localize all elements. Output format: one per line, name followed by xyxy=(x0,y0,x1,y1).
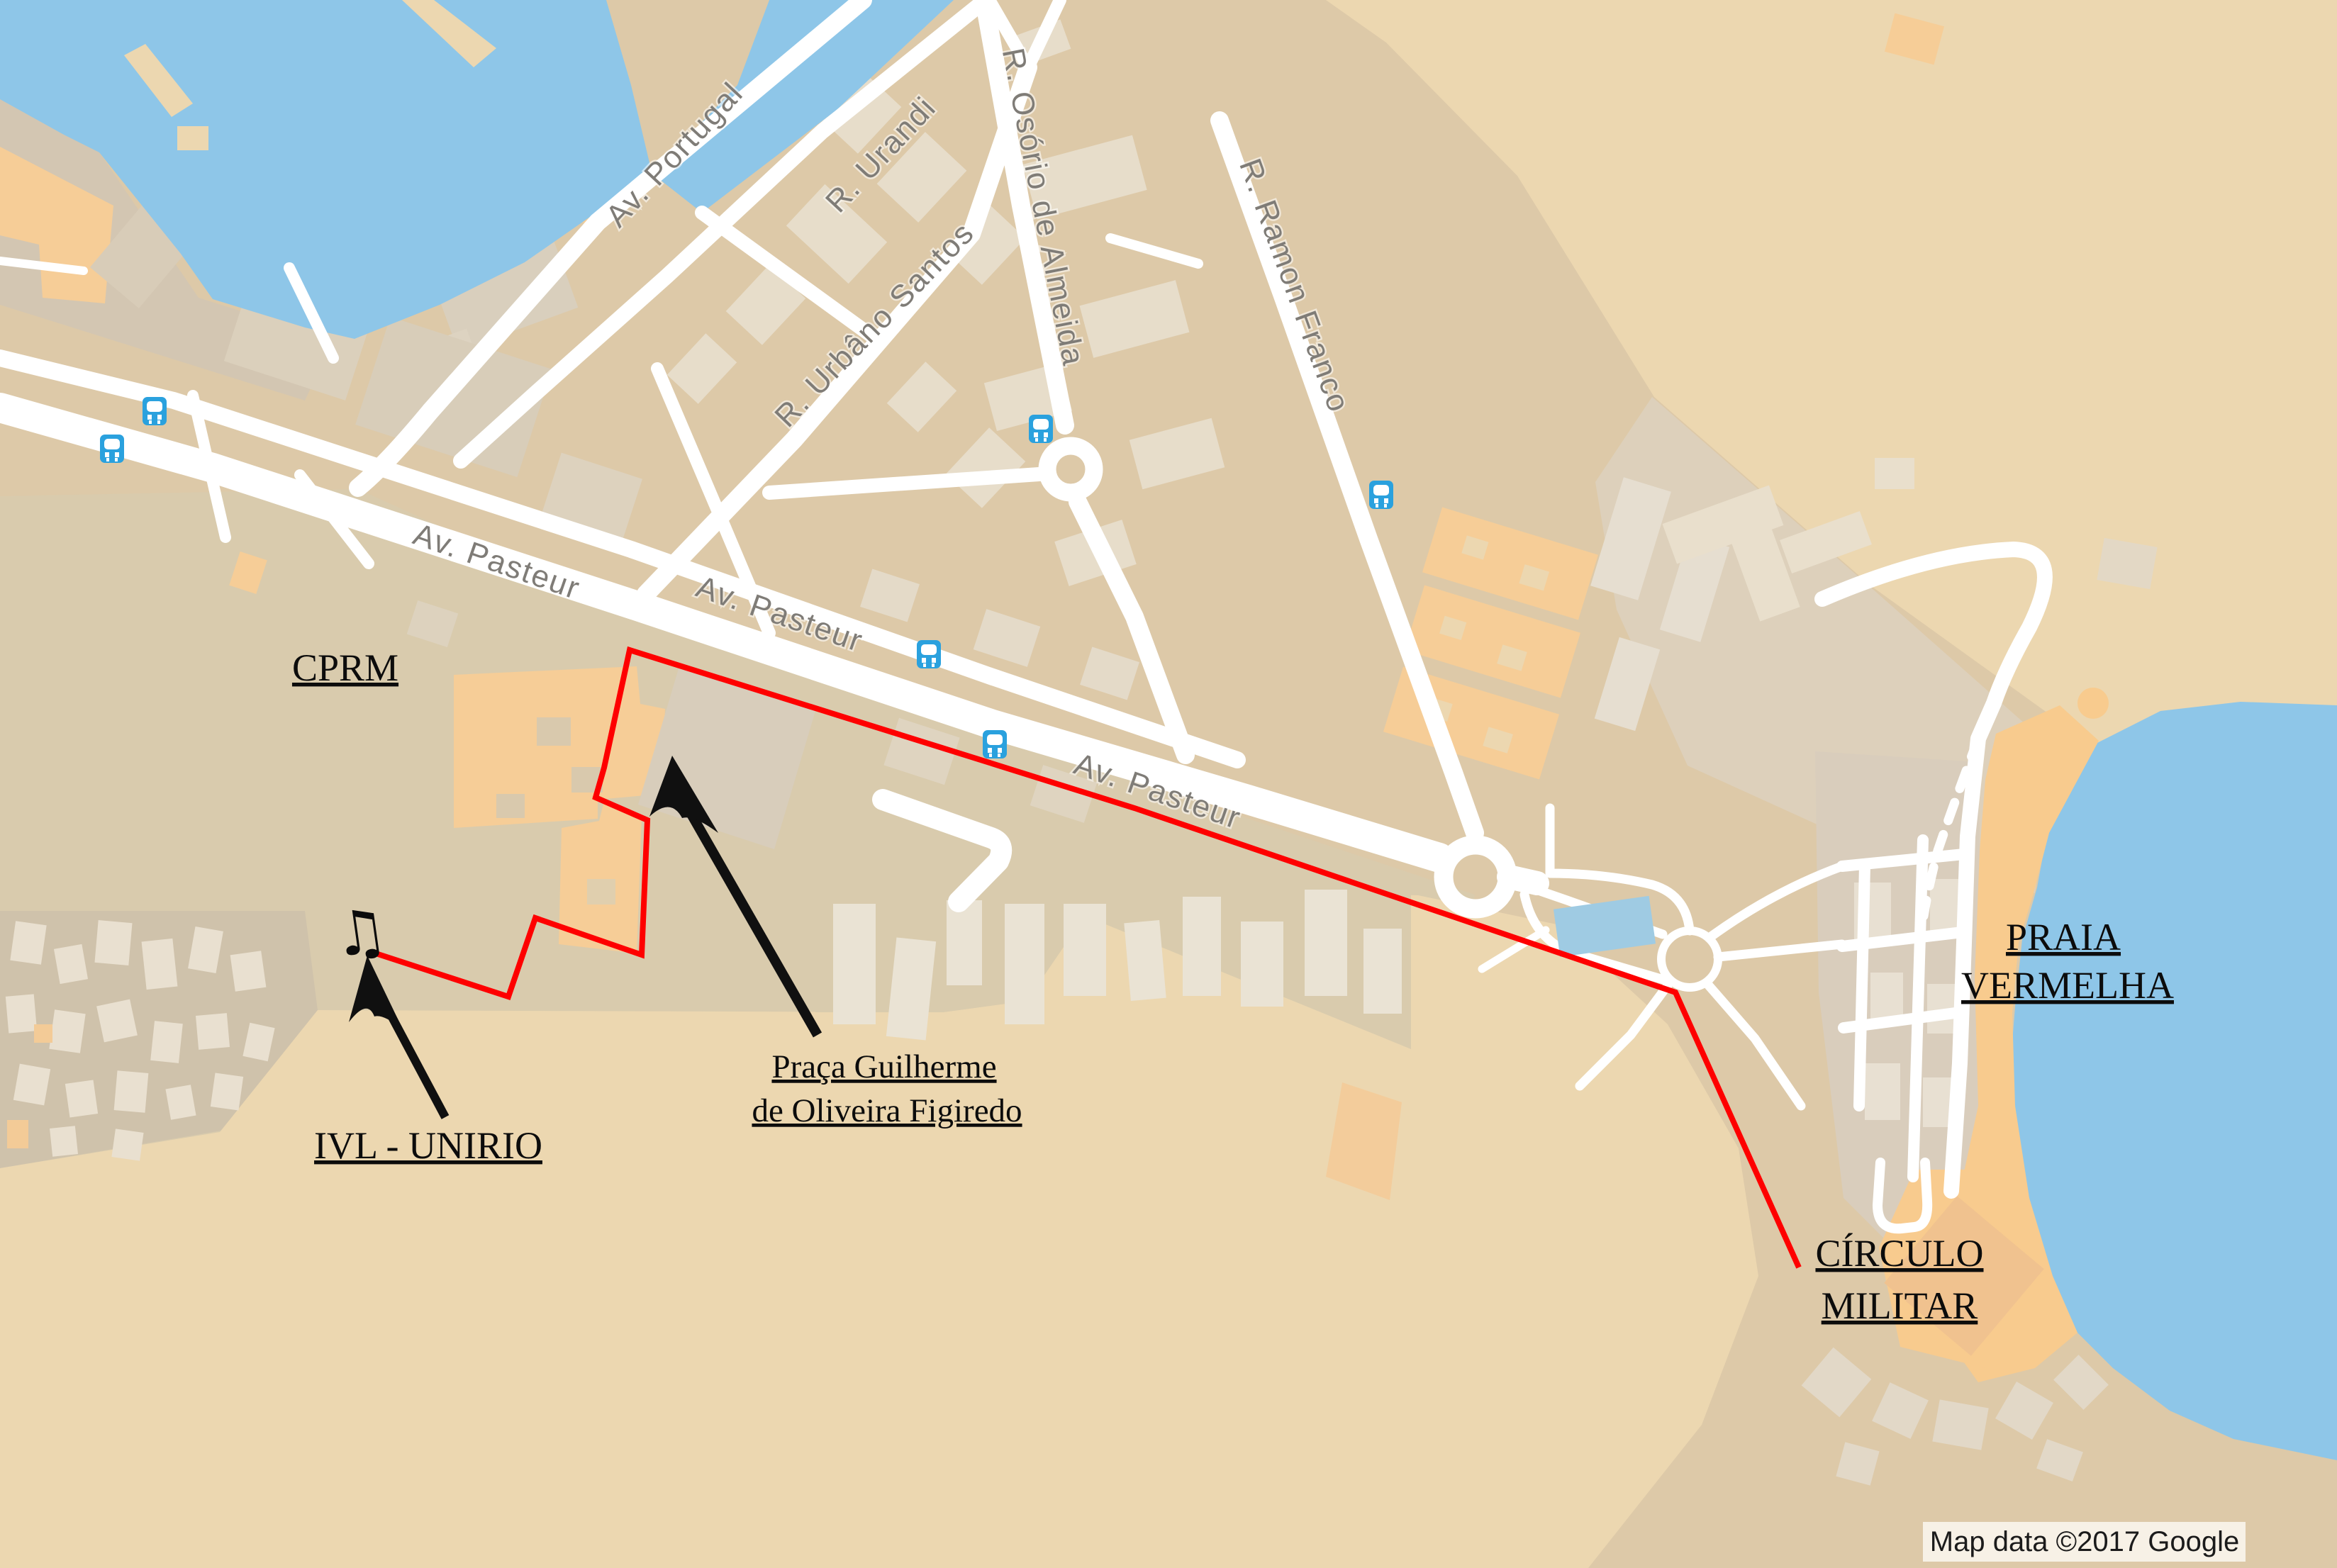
label-circulo-line2: MILITAR xyxy=(1822,1284,1978,1327)
pier xyxy=(177,126,208,150)
label-praca-line1: Praça Guilherme xyxy=(771,1048,996,1085)
label-ivl-unirio: IVL - UNIRIO xyxy=(314,1124,542,1167)
music-note-icon: ♫ xyxy=(328,894,392,972)
bus-stop-icon[interactable] xyxy=(1369,481,1393,509)
label-cprm: CPRM xyxy=(292,646,398,689)
map-canvas[interactable]: ♫ Av. Portugal R. Urandi R. Urbâno Santo… xyxy=(0,0,2337,1568)
label-praia-line2: VERMELHA xyxy=(1961,964,2174,1007)
bus-stop-icon[interactable] xyxy=(1029,415,1053,443)
bus-stop-icon[interactable] xyxy=(917,640,941,668)
label-circulo-line1: CÍRCULO xyxy=(1815,1232,1983,1275)
bus-stop-icon[interactable] xyxy=(983,730,1007,758)
label-praca-line2: de Oliveira Figiredo xyxy=(752,1092,1022,1129)
bus-stop-icon[interactable] xyxy=(100,435,124,463)
attribution-text: Map data ©2017 Google xyxy=(1930,1526,2239,1557)
label-praia-line1: PRAIA xyxy=(2006,916,2121,958)
bus-stop-icon[interactable] xyxy=(143,397,167,425)
map-attribution: Map data ©2017 Google xyxy=(1923,1522,2246,1562)
